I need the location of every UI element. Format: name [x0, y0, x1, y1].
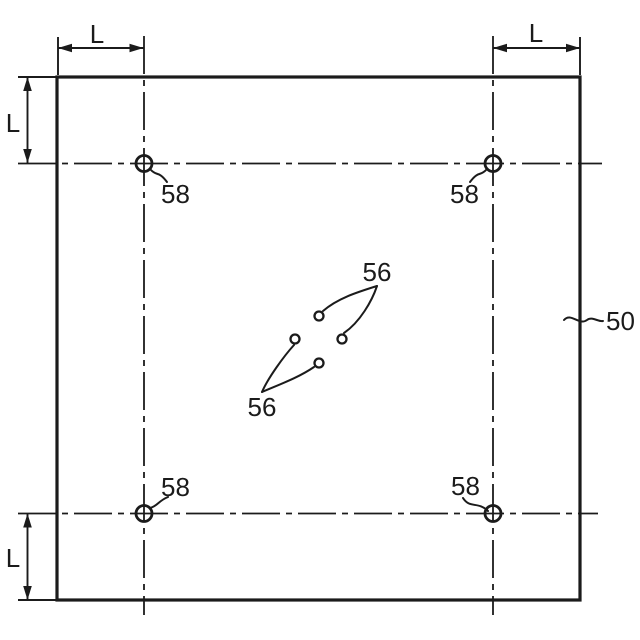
- center-hole-right: [338, 335, 347, 344]
- dimension-label-top-left: L: [90, 19, 104, 49]
- arrowhead-left-lower-down: [23, 586, 32, 600]
- center-hole-top: [315, 312, 324, 321]
- arrowhead-left-upper-up: [23, 77, 32, 91]
- figure-canvas: L L L L 58 58 58 58 56 56 50: [0, 0, 640, 640]
- dimension-label-top-right: L: [529, 18, 543, 48]
- corner-hole-label-top-left: 58: [161, 179, 190, 209]
- plate-outline: [57, 77, 580, 600]
- center-hole-left: [291, 335, 300, 344]
- arrowhead-left-upper-down: [23, 149, 32, 163]
- dimension-label-left-lower: L: [6, 543, 20, 573]
- patent-figure-plate-drawing: L L L L 58 58 58 58 56 56 50: [0, 0, 640, 640]
- corner-hole-label-top-right: 58: [450, 179, 479, 209]
- center-hole-label-lower: 56: [248, 392, 277, 422]
- arrowhead-top-right-left: [493, 44, 507, 53]
- leader-center-upper-to-right-hole: [344, 286, 377, 333]
- leader-plate: [564, 317, 603, 321]
- center-hole-bottom: [315, 359, 324, 368]
- leader-center-upper-to-top-hole: [323, 286, 377, 311]
- arrowhead-left-lower-up: [23, 514, 32, 528]
- corner-hole-label-bottom-right: 58: [451, 471, 480, 501]
- corner-hole-label-bottom-left: 58: [161, 472, 190, 502]
- plate-label: 50: [606, 306, 635, 336]
- arrowhead-top-left-left: [58, 44, 72, 53]
- dimension-label-left-upper: L: [6, 108, 20, 138]
- arrowhead-top-right-right: [566, 44, 580, 53]
- leader-center-lower-to-bottom-hole: [262, 367, 314, 392]
- arrowhead-top-left-right: [130, 44, 144, 53]
- center-hole-label-upper: 56: [363, 257, 392, 287]
